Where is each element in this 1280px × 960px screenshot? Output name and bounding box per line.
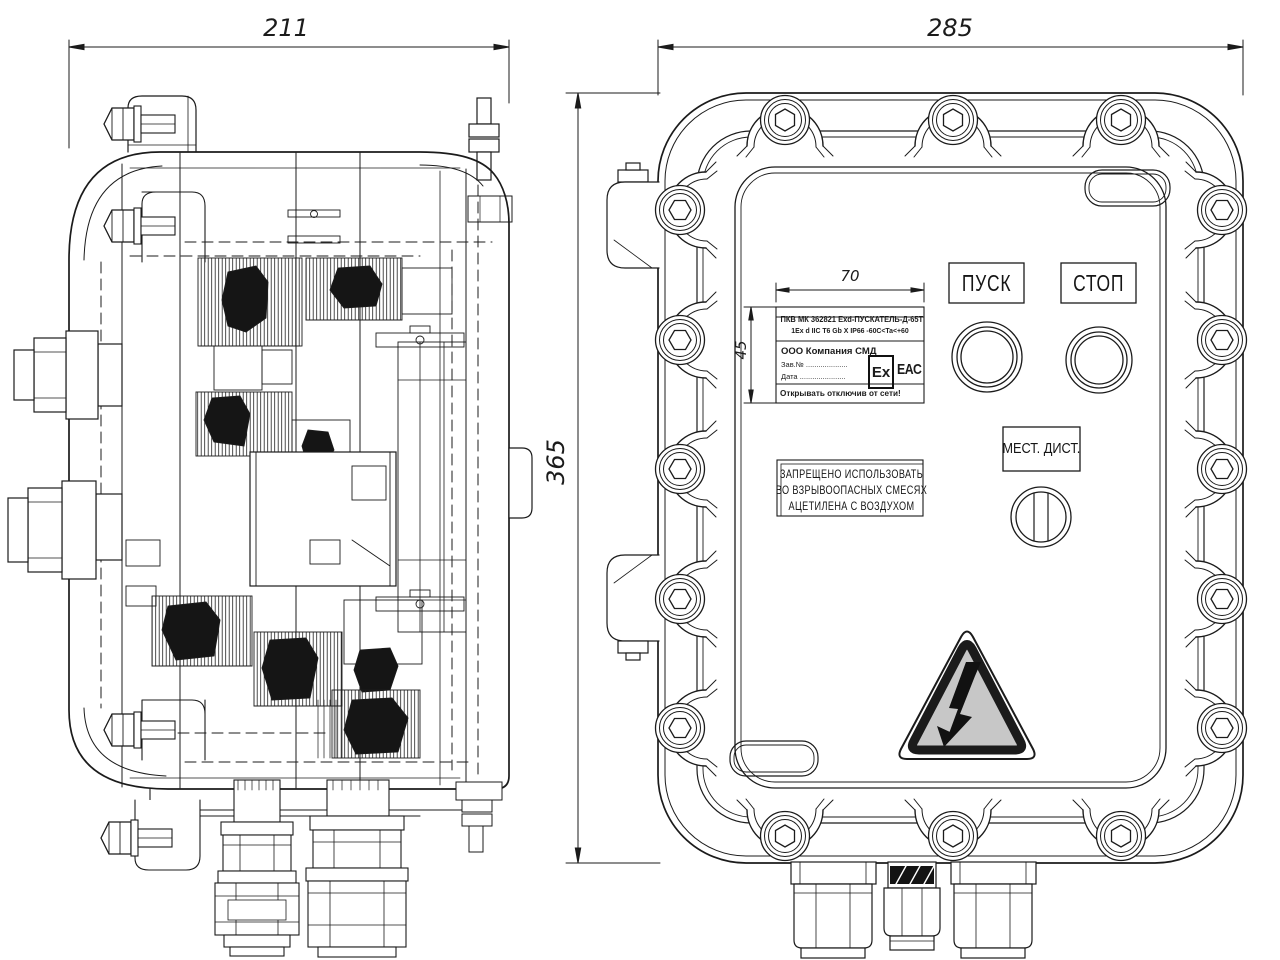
front-view-cable-glands xyxy=(791,862,1036,958)
nameplate-open-warning: Открывать отключив от сети! xyxy=(780,388,901,398)
drawing-linework xyxy=(0,0,1280,960)
dim-70-value: 70 xyxy=(820,267,880,285)
warning-line-1: ЗАПРЕЩЕНО ИСПОЛЬЗОВАТЬ xyxy=(776,466,927,482)
bolt-lug xyxy=(905,96,1001,158)
cover-slot-bottom-left xyxy=(730,741,818,776)
stop-button-label: СТОП xyxy=(1061,263,1136,303)
dim-211-value: 211 xyxy=(236,14,336,42)
acetylene-warning-label: ЗАПРЕЩЕНО ИСПОЛЬЗОВАТЬ ВО ВЗРЫВООПАСНЫХ … xyxy=(781,464,923,516)
selector-label: МЕСТ. ДИСТ. xyxy=(1003,427,1080,471)
dim-45-value: 45 xyxy=(732,322,750,378)
dim-285 xyxy=(658,40,1243,95)
bolt-lug xyxy=(1185,421,1247,517)
side-cable-entries xyxy=(8,331,122,579)
start-button-label: ПУСК xyxy=(949,263,1024,303)
bolt-lug xyxy=(1185,292,1247,388)
warning-line-2: ВО ВЗРЫВООПАСНЫХ СМЕСЯХ xyxy=(776,482,927,498)
ex-mark-icon: Ex xyxy=(868,355,894,389)
internal-assembly xyxy=(126,210,466,758)
bolt-lug xyxy=(905,799,1001,861)
cover-slot-top-right xyxy=(1085,170,1170,206)
technical-drawing-page: 211 285 365 70 45 ПУСК СТОП МЕСТ. ДИСТ. … xyxy=(0,0,1280,960)
dim-70 xyxy=(776,283,924,302)
bolt-lug xyxy=(1185,680,1247,776)
front-view xyxy=(607,93,1247,958)
side-view-cable-glands xyxy=(215,780,408,957)
bolt-lug xyxy=(1185,162,1247,258)
side-view-right-tab xyxy=(509,448,532,518)
start-button[interactable] xyxy=(952,322,1022,392)
bolt-lug xyxy=(737,96,833,158)
bolt-lug xyxy=(1073,799,1169,861)
nameplate: ПКВ МК 362821 Exd-ПУСКАТЕЛЬ-Д-65Т 1Ex d … xyxy=(776,307,924,403)
nameplate-date: Дата ...................... xyxy=(781,372,846,381)
eac-mark-icon: ЕАС xyxy=(897,361,921,378)
selector-switch[interactable] xyxy=(1011,487,1071,547)
high-voltage-warning-icon xyxy=(899,632,1034,760)
dim-365-value: 365 xyxy=(542,427,570,497)
nameplate-ex-marking: 1Ex d IIC T6 Gb X IP66 -60C<Ta<+60 xyxy=(782,326,918,335)
dim-285-value: 285 xyxy=(900,14,1000,42)
nameplate-model: ПКВ МК 362821 Exd-ПУСКАТЕЛЬ-Д-65Т xyxy=(780,315,919,324)
bolt-lug xyxy=(1185,551,1247,647)
warning-line-3: АЦЕТИЛЕНА С ВОЗДУХОМ xyxy=(776,498,927,514)
side-view-top-bolt-bosses xyxy=(128,96,512,222)
bolt-lug xyxy=(737,799,833,861)
side-view xyxy=(8,96,532,957)
hinge-top xyxy=(607,163,659,268)
bolt-lug xyxy=(1073,96,1169,158)
nameplate-company: ООО Компания СМД xyxy=(781,346,877,357)
stop-button[interactable] xyxy=(1066,327,1132,393)
nameplate-serial: Зав.№ .................... xyxy=(781,360,848,369)
hinge-bottom xyxy=(607,555,659,660)
